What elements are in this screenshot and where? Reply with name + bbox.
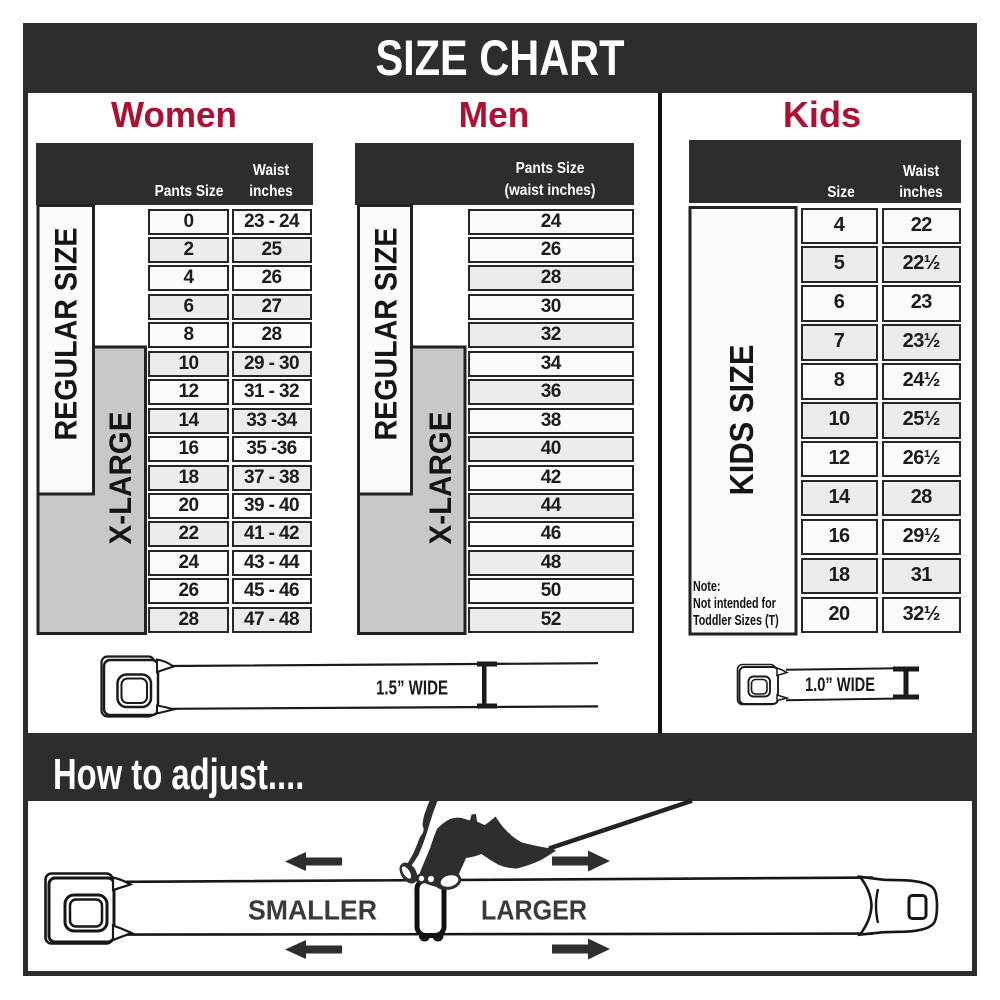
svg-text:LARGER: LARGER: [481, 895, 587, 926]
svg-text:SMALLER: SMALLER: [248, 895, 377, 926]
svg-text:1.0” WIDE: 1.0” WIDE: [805, 675, 875, 696]
svg-text:1.5” WIDE: 1.5” WIDE: [376, 677, 448, 700]
